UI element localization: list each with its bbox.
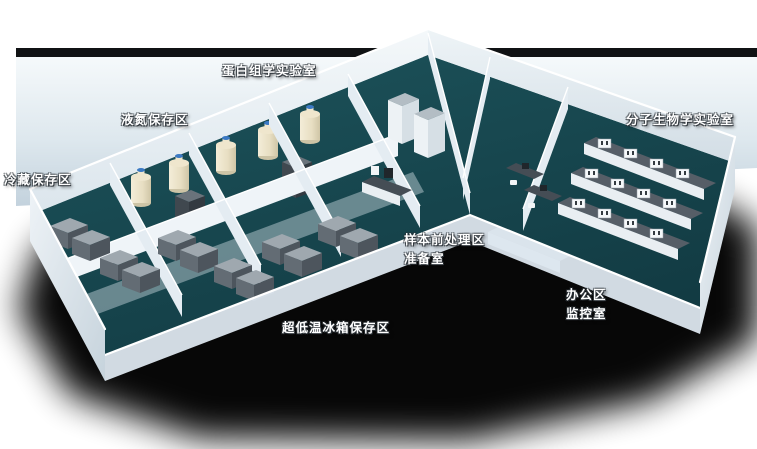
label-proteomics-lab: 蛋白组学实验室 [222,60,317,79]
white-cabinet [414,107,445,158]
label-liquid-nitrogen-storage: 液氮保存区 [121,109,189,128]
label-monitoring-room: 监控室 [566,303,607,322]
floorplan-illustration [0,0,757,449]
lab-floorplan-3d: 蛋白组学实验室 液氮保存区 冷藏保存区 分子生物学实验室 样本前处理区 准备室 … [0,0,757,449]
label-sample-pretreatment-area: 样本前处理区 [404,229,485,248]
label-cold-storage: 冷藏保存区 [4,169,72,188]
label-office-area: 办公区 [566,284,607,303]
label-ult-freezer-storage: 超低温冰箱保存区 [282,317,390,336]
label-molecular-biology-lab: 分子生物学实验室 [626,109,734,128]
label-preparation-room: 准备室 [404,248,445,267]
